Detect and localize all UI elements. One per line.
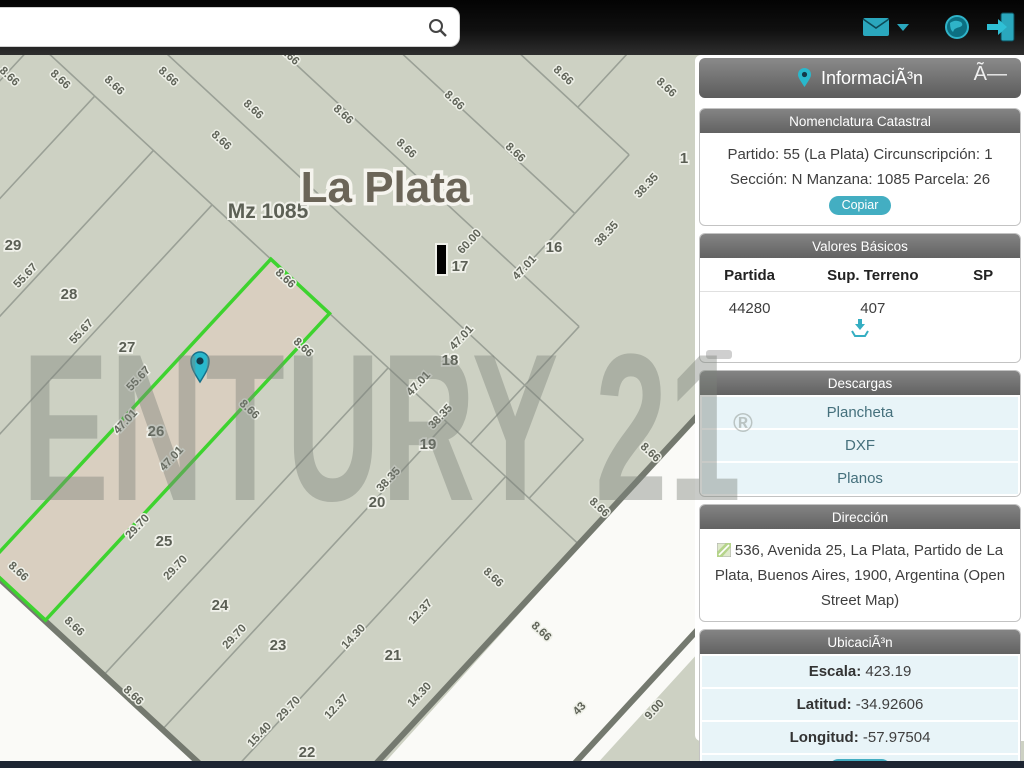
parcel-number-label: 23 (270, 637, 287, 654)
panel-ubicacion: UbicaciÃ³n Escala: 423.19 Latitud: -34.9… (699, 629, 1021, 768)
nomenclatura-line1: Partido: 55 (La Plata) Circunscripción: … (708, 142, 1012, 167)
row-latitud: Latitud: -34.92606 (702, 689, 1018, 720)
parcel-number-label: 25 (156, 533, 173, 550)
valores-table: Partida Sup. Terreno SP 44280 407 (700, 258, 1020, 319)
col-partida: Partida (700, 258, 799, 292)
mail-icon[interactable] (862, 16, 892, 38)
parcel-number-label: 26 (148, 423, 165, 440)
download-icon[interactable] (850, 319, 870, 337)
city-label: La Plata (301, 163, 470, 212)
parcel-number-label: 22 (299, 744, 316, 761)
panel-nomenclatura: Nomenclatura Catastral Partido: 55 (La P… (699, 108, 1021, 226)
close-button[interactable]: Ã— (974, 63, 1007, 86)
parcel-number-label: 29 (5, 237, 22, 254)
sidebar-header: InformaciÃ³n Ã— (699, 58, 1021, 98)
latitud-value: -34.92606 (856, 696, 924, 713)
building-footprint (436, 244, 447, 275)
row-escala: Escala: 423.19 (702, 656, 1018, 687)
sidebar-title: InformaciÃ³n (821, 68, 923, 89)
cell-sup-terreno: 407 (799, 292, 946, 320)
info-sidebar: InformaciÃ³n Ã— Nomenclatura Catastral P… (695, 55, 1024, 741)
parcel-number-label: 17 (452, 258, 469, 275)
horizontal-scrollbar[interactable] (706, 350, 732, 359)
row-longitud: Longitud: -57.97504 (702, 722, 1018, 753)
latitud-label: Latitud: (797, 696, 852, 713)
panel-descargas-title: Descargas (700, 371, 1020, 395)
search-box[interactable] (0, 7, 460, 47)
longitud-label: Longitud: (790, 729, 859, 746)
parcel-number-label: 21 (385, 647, 402, 664)
download-link-plancheta[interactable]: Plancheta (702, 397, 1018, 428)
cell-partida: 44280 (700, 292, 799, 320)
direccion-text: 536, Avenida 25, La Plata, Partido de La… (715, 542, 1005, 609)
longitud-value: -57.97504 (863, 729, 931, 746)
parcel-number-label: 1 (680, 150, 688, 167)
parcel-number-label: 28 (61, 286, 78, 303)
panel-direccion-title: Dirección (700, 505, 1020, 529)
panel-valores-title: Valores Básicos (700, 234, 1020, 258)
block-label: Mz 1085 (228, 200, 309, 223)
panel-descargas: Descargas Plancheta DXF Planos (699, 370, 1021, 497)
parcel-number-label: 19 (420, 436, 437, 453)
download-link-dxf[interactable]: DXF (702, 430, 1018, 461)
osm-map-icon (717, 543, 731, 557)
logout-icon[interactable] (984, 10, 1018, 44)
col-sp: SP (946, 258, 1020, 292)
col-sup-terreno: Sup. Terreno (799, 258, 946, 292)
panel-nomenclatura-title: Nomenclatura Catastral (700, 109, 1020, 133)
download-link-planos[interactable]: Planos (702, 463, 1018, 494)
escala-label: Escala: (809, 663, 862, 680)
parcel-number-label: 18 (442, 352, 459, 369)
parcel-number-label: 27 (119, 339, 136, 356)
pin-icon (797, 68, 812, 88)
panel-valores: Valores Básicos Partida Sup. Terreno SP … (699, 233, 1021, 363)
cell-sp (946, 292, 1020, 320)
bottom-edge-bar (0, 761, 1024, 768)
parcel-number-label: 20 (369, 494, 386, 511)
parcel-number-label: 24 (212, 597, 229, 614)
app-window: 292827262524232221201918171618.668.668.6… (0, 0, 1024, 768)
table-row: 44280 407 (700, 292, 1020, 320)
caret-down-icon[interactable] (896, 23, 910, 32)
copy-nomenclatura-button[interactable]: Copiar (829, 196, 892, 215)
top-toolbar (0, 0, 1024, 55)
search-input[interactable] (9, 8, 419, 46)
escala-value: 423.19 (865, 663, 911, 680)
help-globe-icon[interactable] (944, 14, 970, 40)
search-icon[interactable] (427, 17, 449, 39)
panel-direccion: Dirección 536, Avenida 25, La Plata, Par… (699, 504, 1021, 622)
nomenclatura-line2: Sección: N Manzana: 1085 Parcela: 26 (708, 167, 1012, 192)
parcel-number-label: 16 (546, 239, 563, 256)
panel-ubicacion-title: UbicaciÃ³n (700, 630, 1020, 654)
